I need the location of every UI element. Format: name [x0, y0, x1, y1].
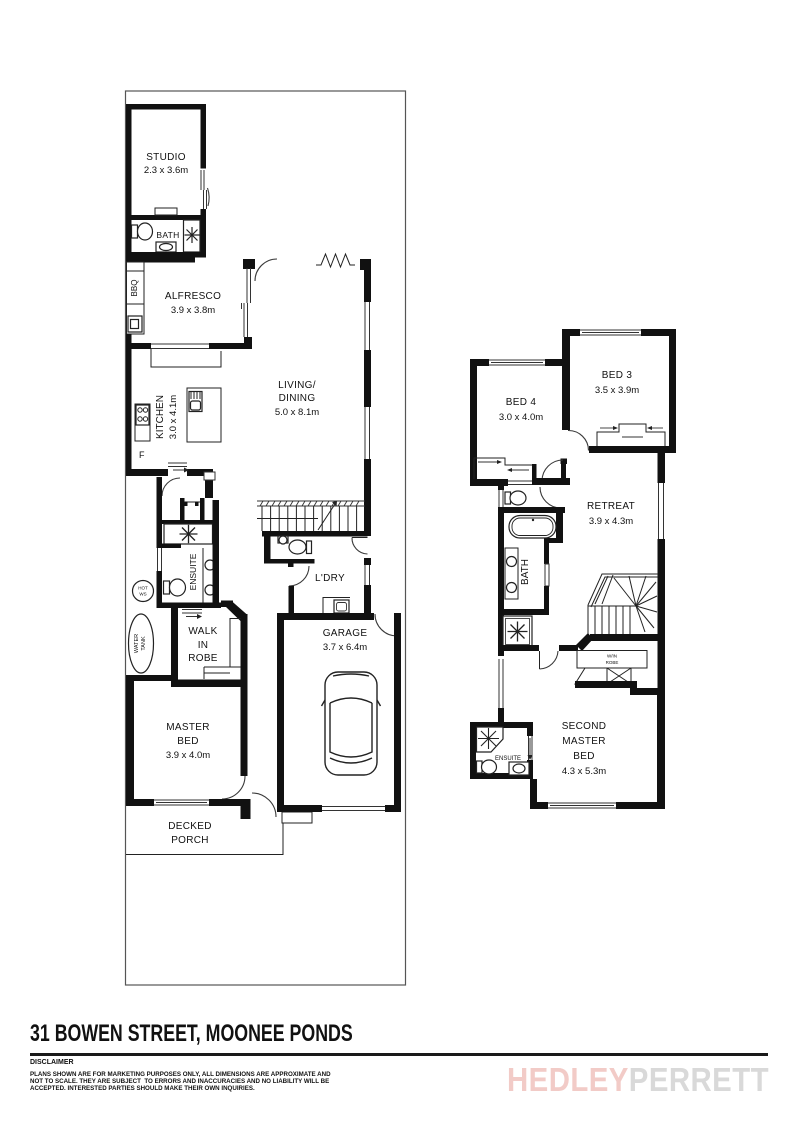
svg-text:MASTER: MASTER — [562, 736, 605, 747]
svg-text:KITCHEN: KITCHEN — [155, 395, 166, 439]
svg-text:5.0 x 8.1m: 5.0 x 8.1m — [275, 407, 319, 418]
svg-text:SECOND: SECOND — [562, 721, 607, 732]
svg-text:TANK: TANK — [141, 636, 147, 651]
svg-text:DECKED: DECKED — [168, 821, 211, 832]
svg-text:3.9 x 4.3m: 3.9 x 4.3m — [589, 516, 633, 527]
svg-text:PORCH: PORCH — [171, 835, 209, 846]
svg-text:4.3 x 5.3m: 4.3 x 5.3m — [562, 766, 606, 777]
svg-text:LIVING/: LIVING/ — [278, 380, 316, 391]
svg-text:3.9 x 3.8m: 3.9 x 3.8m — [171, 305, 215, 316]
svg-text:L'DRY: L'DRY — [315, 573, 345, 584]
svg-text:BATH: BATH — [156, 230, 179, 240]
svg-text:W/IN: W/IN — [607, 654, 617, 659]
svg-text:IN: IN — [198, 640, 209, 651]
svg-text:BED 3: BED 3 — [602, 370, 633, 381]
svg-text:ROBE: ROBE — [606, 660, 619, 665]
svg-text:ENSUITE: ENSUITE — [495, 756, 521, 762]
svg-text:3.5 x 3.9m: 3.5 x 3.9m — [595, 385, 639, 396]
svg-text:ENSUITE: ENSUITE — [188, 553, 198, 590]
svg-text:STUDIO: STUDIO — [146, 152, 186, 163]
svg-text:HOT: HOT — [138, 586, 148, 591]
svg-text:BED: BED — [177, 736, 198, 747]
svg-text:WALK: WALK — [188, 626, 217, 637]
svg-text:ALFRESCO: ALFRESCO — [165, 291, 221, 302]
svg-text:BED: BED — [573, 751, 594, 762]
svg-text:MASTER: MASTER — [166, 722, 209, 733]
svg-text:RETREAT: RETREAT — [587, 501, 635, 512]
svg-text:ROBE: ROBE — [188, 653, 218, 664]
svg-text:GARAGE: GARAGE — [323, 628, 368, 639]
svg-text:WATER: WATER — [134, 634, 140, 653]
svg-text:DINING: DINING — [279, 393, 316, 404]
svg-text:WS: WS — [139, 592, 146, 597]
svg-text:F: F — [139, 450, 145, 460]
svg-text:3.0 x 4.1m: 3.0 x 4.1m — [168, 395, 179, 439]
svg-text:BBQ: BBQ — [130, 280, 139, 297]
svg-text:3.9 x 4.0m: 3.9 x 4.0m — [166, 750, 210, 761]
svg-text:3.0 x 4.0m: 3.0 x 4.0m — [499, 412, 543, 423]
svg-text:2.3 x 3.6m: 2.3 x 3.6m — [144, 165, 188, 176]
svg-text:BATH: BATH — [520, 559, 531, 585]
svg-text:3.7 x 6.4m: 3.7 x 6.4m — [323, 642, 367, 653]
svg-text:BED 4: BED 4 — [506, 397, 537, 408]
